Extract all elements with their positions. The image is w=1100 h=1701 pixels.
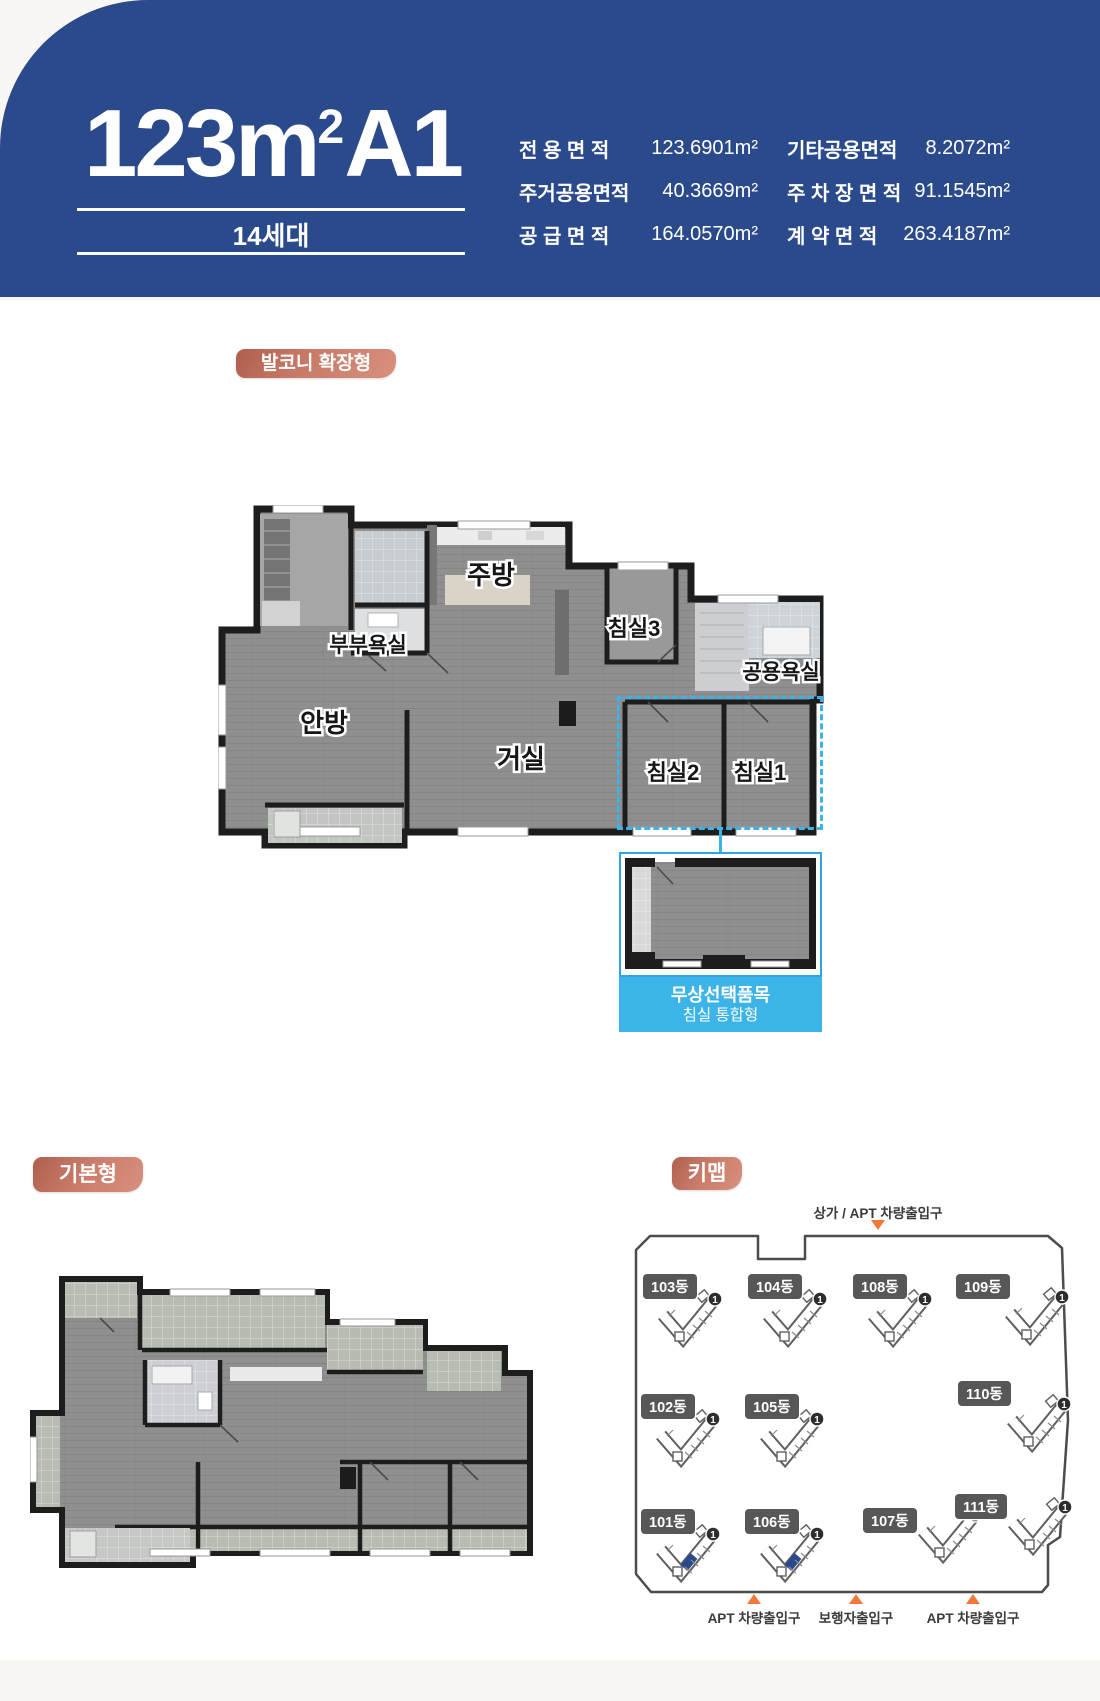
room-label-bedroom3: 침실3 [608, 616, 661, 641]
spec-value: 123.6901m² [641, 137, 758, 160]
building-badge: 102동 [641, 1394, 695, 1419]
building-badge: 110동 [958, 1381, 1011, 1406]
title-underline-top [77, 208, 465, 211]
entrance-arrow-up-icon [747, 1594, 761, 1604]
spec-label: 주거공용면적 [519, 177, 641, 206]
badge-keymap: 키맵 [672, 1157, 742, 1190]
unit-title-type: A1 [344, 90, 461, 197]
keymap-building-101-highlighted: 101동 [641, 1509, 695, 1534]
option-label-line2: 침실 통합형 [683, 1006, 759, 1025]
spec-row-contract-area: 계 약 면 적 263.4187m² [787, 219, 1010, 249]
building-icon [1002, 1393, 1074, 1457]
keymap-building-107: 107동 [863, 1508, 917, 1533]
basic-floorplan [30, 1272, 535, 1568]
spec-row-supply-area: 공 급 면 적 164.0570m² [519, 219, 758, 249]
entrance-label: APT 차량출입구 [927, 1611, 1020, 1626]
spec-value: 8.2072m² [903, 137, 1010, 160]
entrance-arrow-up-icon [849, 1594, 863, 1604]
option-inset-floorplan [623, 856, 818, 973]
keymap-building-110: 110동 [958, 1381, 1011, 1406]
spec-label: 주 차 장 면 적 [787, 177, 903, 206]
room-label-common-bath: 공용욕실 [742, 661, 819, 684]
keymap-building-104: 104동 [748, 1274, 802, 1299]
entrance-label: 보행자출입구 [819, 1611, 894, 1626]
option-label: 무상선택품목 침실 통합형 [619, 977, 822, 1032]
keymap-building-109: 109동 [956, 1274, 1010, 1299]
keymap-top-entrance-label: 상가 / APT 차량출입구 [768, 1202, 988, 1222]
spec-row-residential-common-area: 주거공용면적 40.3669m² [519, 176, 758, 206]
spec-value: 263.4187m² [903, 223, 1010, 246]
building-badge: 109동 [956, 1274, 1010, 1299]
room-label-living: 거실 [497, 744, 545, 774]
spec-label: 전 용 면 적 [519, 134, 641, 163]
building-badge: 101동 [641, 1509, 695, 1534]
unit-title-area: 123m [84, 90, 318, 197]
spec-label: 계 약 면 적 [787, 220, 903, 249]
spec-label: 공 급 면 적 [519, 220, 641, 249]
room-label-master-bath: 부부욕실 [329, 634, 406, 657]
spec-value: 40.3669m² [641, 180, 758, 203]
spec-row-parking-area: 주 차 장 면 적 91.1545m² [787, 176, 1010, 206]
room-label-master-bedroom: 안방 [300, 708, 348, 738]
entrance-arrow-up-icon [966, 1594, 980, 1604]
building-icon [1000, 1286, 1072, 1350]
room-label-kitchen: 주방 [467, 560, 515, 590]
building-badge: 104동 [748, 1274, 802, 1299]
unit-count: 14세대 [77, 216, 465, 253]
building-badge: 106동 [745, 1509, 799, 1534]
page-footer-strip [0, 1660, 1100, 1701]
badge-balcony-extended: 발코니 확장형 [236, 349, 396, 378]
building-badge: 108동 [853, 1274, 907, 1299]
keymap-building-103: 103동 [643, 1274, 697, 1299]
keymap-building-105: 105동 [745, 1394, 799, 1419]
option-highlight-zone [617, 696, 823, 830]
entrance-label: APT 차량출입구 [708, 1611, 801, 1626]
option-connector-line [719, 830, 722, 852]
spec-row-exclusive-area: 전 용 면 적 123.6901m² [519, 133, 758, 163]
building-badge: 111동 [955, 1494, 1007, 1519]
unit-header: 123m2A1 14세대 전 용 면 적 123.6901m² 주거공용면적 4… [0, 0, 1100, 297]
spec-value: 91.1545m² [903, 180, 1010, 203]
building-icon [1003, 1496, 1075, 1560]
keymap-building-102: 102동 [641, 1394, 695, 1419]
option-label-line1: 무상선택품목 [671, 984, 770, 1007]
keymap-building-106-highlighted: 106동 [745, 1509, 799, 1534]
spec-label: 기타공용면적 [787, 134, 903, 163]
unit-title: 123m2A1 [84, 96, 461, 192]
keymap-entrance-apt-right: APT 차량출입구 [908, 1594, 1038, 1627]
badge-basic-type: 기본형 [33, 1157, 143, 1192]
keymap-building-108: 108동 [853, 1274, 907, 1299]
option-inset-plan [619, 852, 822, 977]
keymap-building-111: 111동 [955, 1494, 1007, 1519]
keymap-entrance-pedestrian: 보행자출입구 [791, 1594, 921, 1627]
building-badge: 105동 [745, 1394, 799, 1419]
building-badge: 103동 [643, 1274, 697, 1299]
building-badge: 107동 [863, 1508, 917, 1533]
title-underline-bottom [77, 252, 465, 255]
unit-title-square-sup: 2 [318, 101, 345, 154]
spec-value: 164.0570m² [641, 223, 758, 246]
spec-row-other-common-area: 기타공용면적 8.2072m² [787, 133, 1010, 163]
